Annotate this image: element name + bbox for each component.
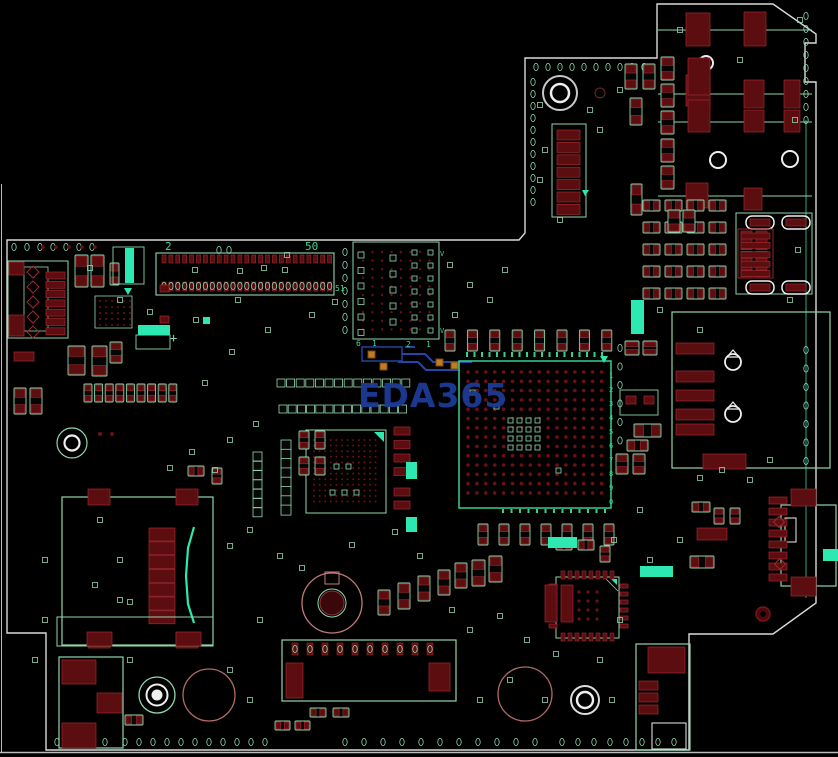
- svg-text:0: 0: [609, 498, 613, 506]
- svg-text:9: 9: [609, 484, 613, 492]
- svg-text:+: +: [170, 331, 177, 345]
- via-array-chip: [353, 242, 439, 339]
- electrolytic-caps: [183, 667, 552, 721]
- top-mid-connector: [552, 124, 586, 217]
- svg-text:8: 8: [609, 470, 613, 478]
- smd-parts: [14, 57, 740, 730]
- svg-text:2: 2: [406, 340, 411, 349]
- svg-text:51: 51: [335, 284, 345, 293]
- bottom-edge-connector-row: [57, 617, 213, 646]
- audio-buzzer: [302, 572, 362, 633]
- sd-card-slot: [62, 489, 213, 648]
- svg-text:50: 50: [305, 240, 318, 253]
- svg-text:5: 5: [609, 428, 613, 436]
- svg-text:4: 4: [609, 414, 613, 422]
- svg-text:V: V: [440, 327, 445, 335]
- svg-text:6: 6: [356, 339, 361, 348]
- svg-text:3: 3: [609, 400, 613, 408]
- pcb-layout-screenshot: 250516121VV+1234567890 EDA365: [0, 0, 838, 757]
- via-pads: [33, 18, 803, 703]
- svg-text:7: 7: [609, 456, 613, 464]
- bottom-left-connector: [59, 657, 123, 748]
- left-diamond-connector: [8, 261, 68, 338]
- small-grid-chip: [95, 296, 132, 328]
- pcb-canvas: 250516121VV+1234567890: [0, 0, 838, 757]
- pin-strip-rows: [277, 379, 410, 413]
- svg-text:1: 1: [426, 340, 431, 349]
- side-port-connector: [769, 489, 836, 596]
- svg-text:6: 6: [609, 442, 613, 450]
- svg-text:2: 2: [165, 240, 172, 253]
- ladder-columns: [253, 440, 291, 517]
- bga-chip-large: [459, 352, 611, 513]
- ffc-connector-50pin: [156, 253, 334, 295]
- bottom-right-connector: [636, 644, 690, 750]
- svg-text:2: 2: [609, 386, 613, 394]
- svg-text:1: 1: [372, 339, 377, 348]
- svg-text:1: 1: [609, 372, 613, 380]
- top-right-ports: [658, 12, 812, 278]
- silk-labels: 250516121VV+1234567890: [165, 240, 613, 506]
- bottom-connector: [282, 640, 456, 701]
- svg-text:V: V: [440, 250, 445, 258]
